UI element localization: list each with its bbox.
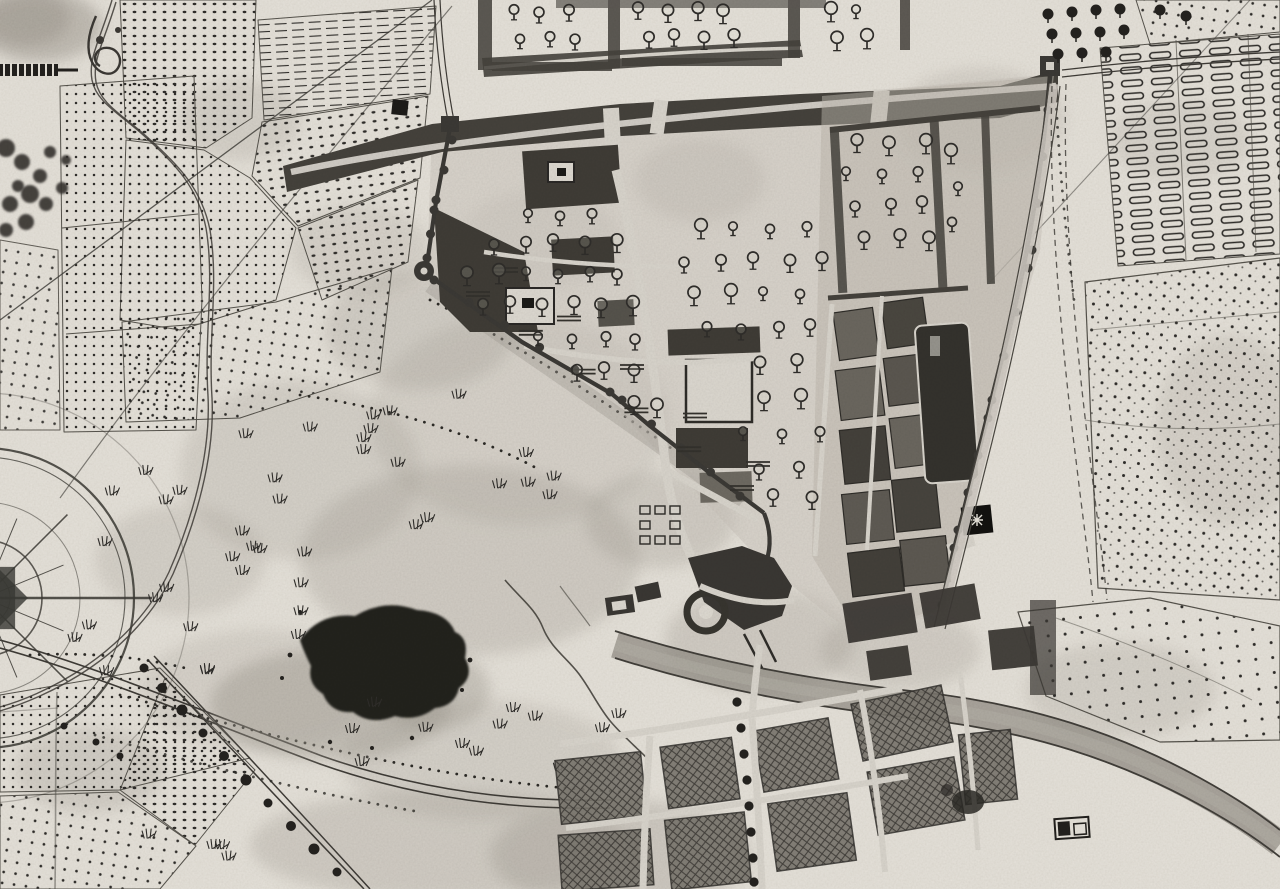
historical-map-scan <box>0 0 1280 889</box>
map-canvas <box>0 0 1280 889</box>
scan-grain-overlay <box>0 0 1280 889</box>
